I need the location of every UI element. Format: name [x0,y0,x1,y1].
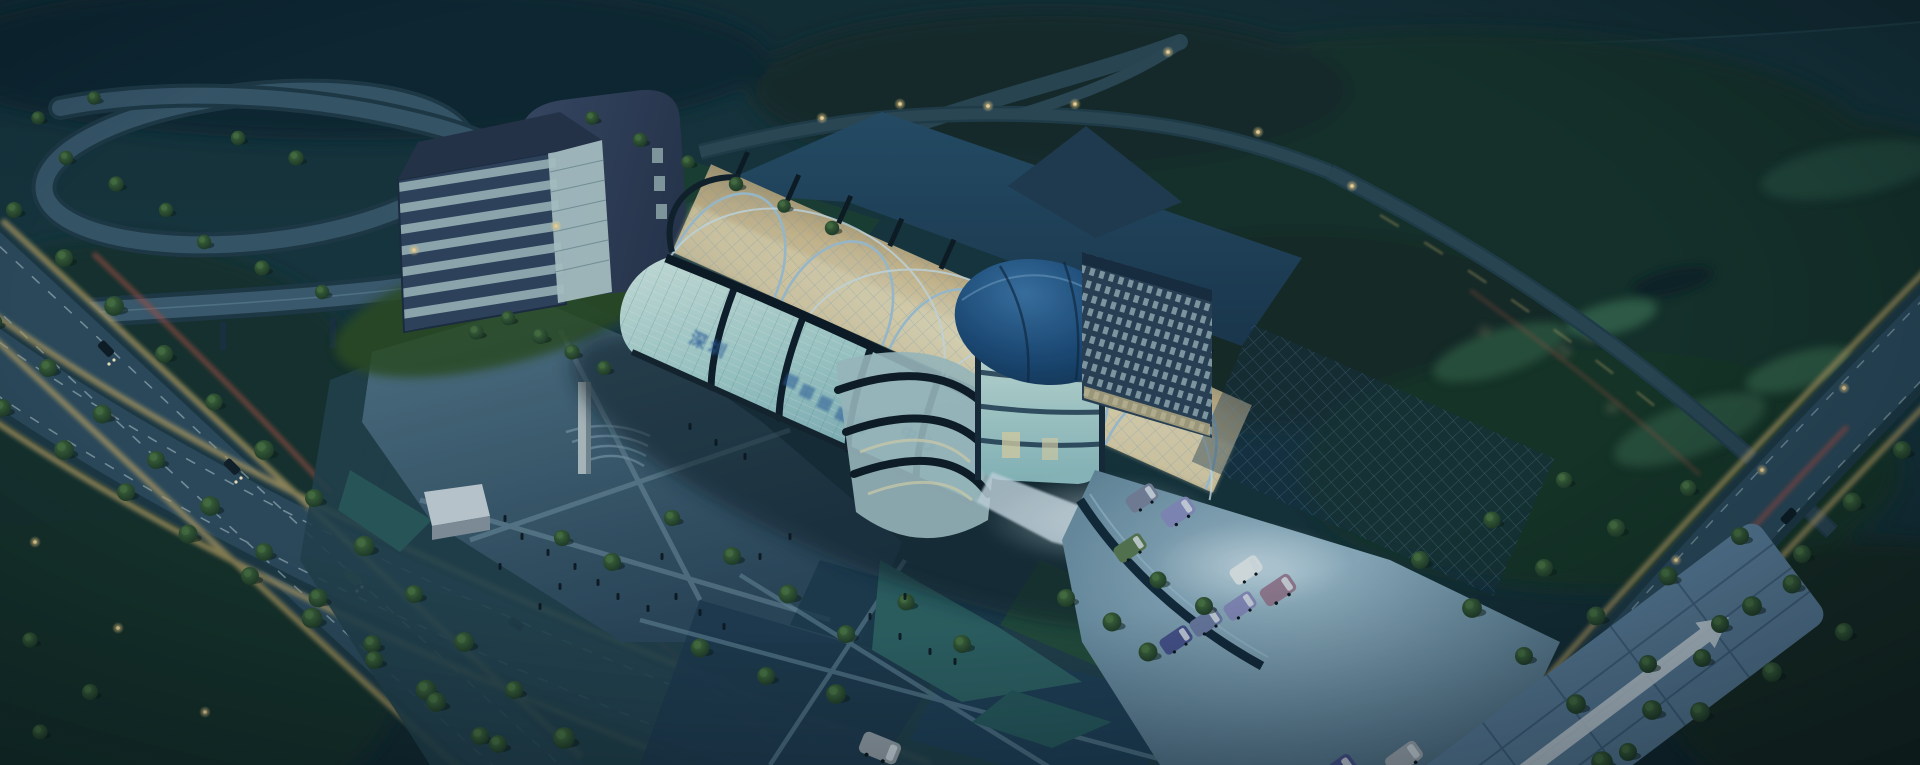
vignette [0,0,1920,765]
architectural-rendering: 深圳 中心 [0,0,1920,765]
